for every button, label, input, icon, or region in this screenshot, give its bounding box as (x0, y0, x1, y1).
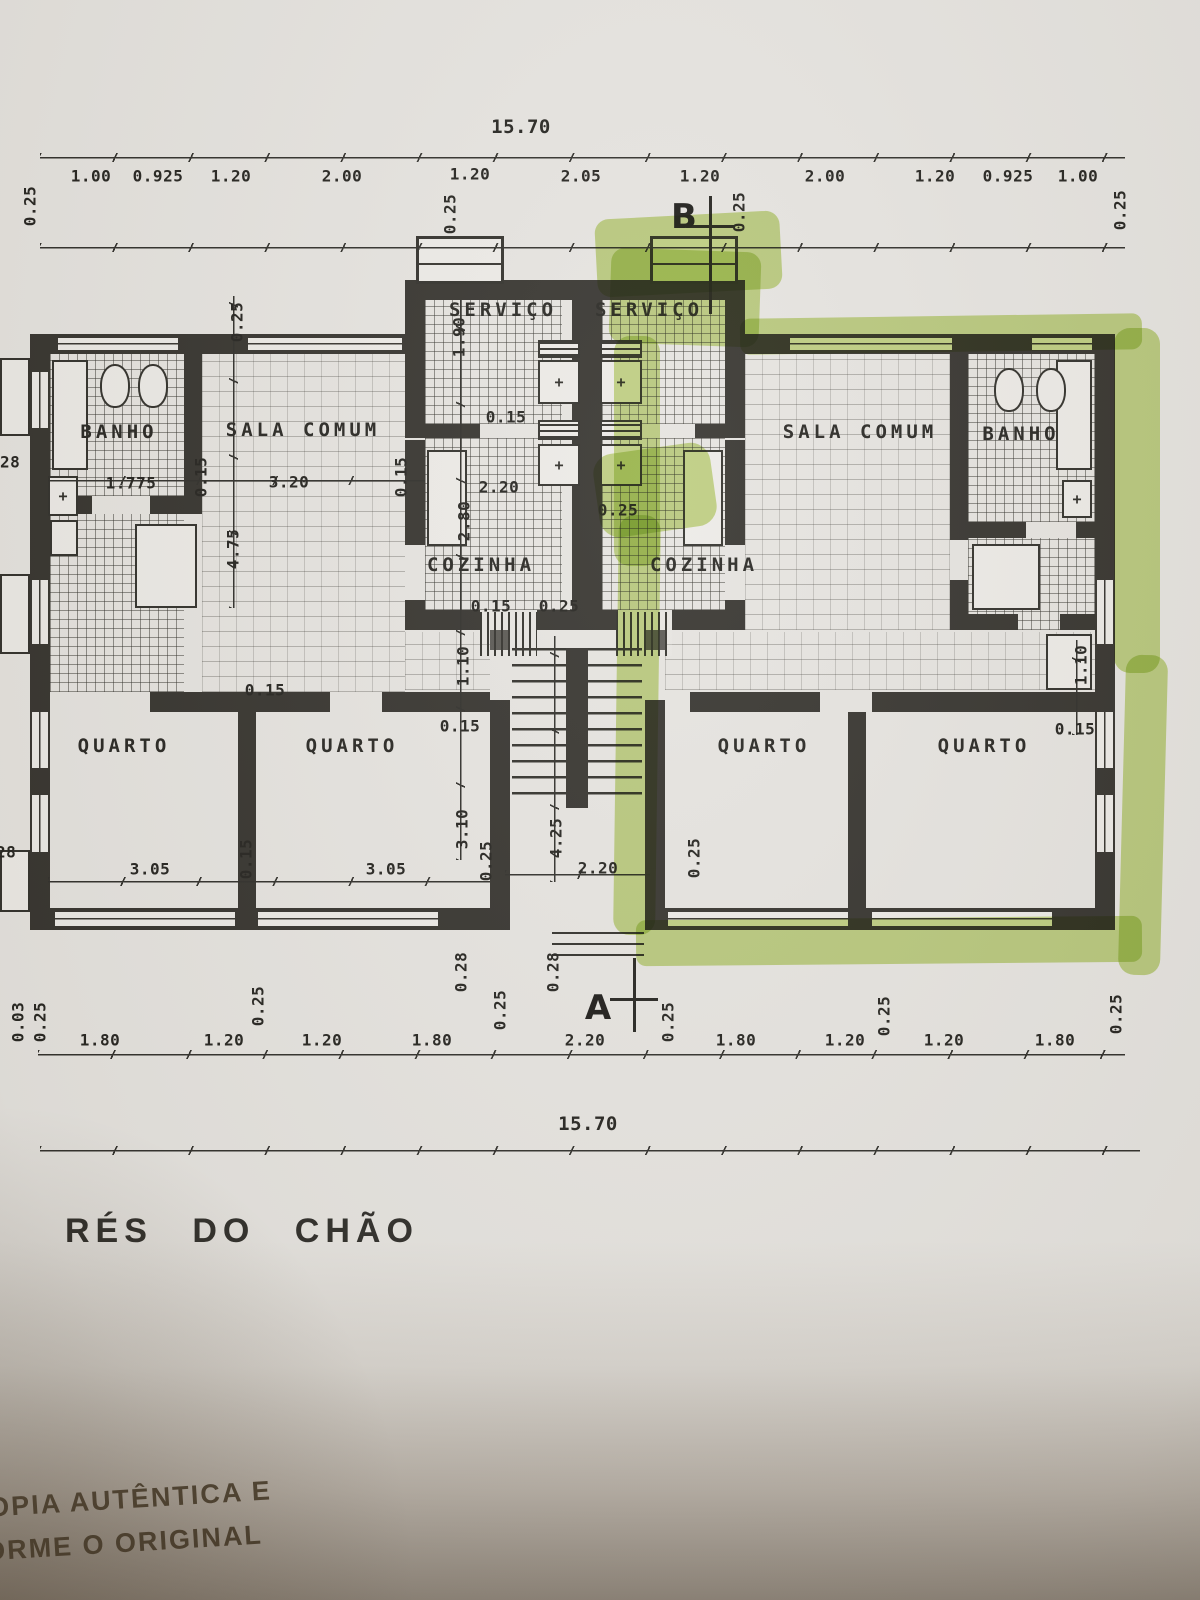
wall (405, 610, 480, 630)
dim-label: 1.80 (1035, 1031, 1076, 1050)
room-label-quarto-1: QUARTO (78, 735, 171, 757)
window (1095, 795, 1115, 852)
dim-label: 0.28 (544, 952, 563, 993)
dim-label: 0.15 (471, 597, 512, 616)
section-line-a-tick (610, 998, 658, 1001)
dim-label: 2.00 (805, 167, 846, 186)
toilet (100, 364, 130, 408)
dim-label: 1.20 (825, 1031, 866, 1050)
dim-label: 0.15 (192, 457, 211, 498)
dim-label: 1.80 (412, 1031, 453, 1050)
dim-label: 3.20 (269, 473, 310, 492)
dim-label: 2.00 (322, 167, 363, 186)
wash-rack (538, 420, 580, 440)
dim-label: 1.10 (1072, 645, 1091, 686)
wall (950, 580, 968, 630)
dim-label-overall: 15.70 (558, 1113, 618, 1135)
closet (135, 524, 197, 608)
room-label-quarto-2: QUARTO (306, 735, 399, 757)
toilet (994, 368, 1024, 412)
closet (972, 544, 1040, 610)
fixture-cross: + (554, 456, 563, 474)
dim-label: 0.28 (0, 453, 20, 472)
cabinet (50, 520, 78, 556)
dim-label: 4.25 (547, 818, 566, 859)
wall (695, 424, 745, 438)
fixture-cross: + (554, 373, 563, 391)
dim-line (40, 1146, 1140, 1155)
dim-label: 2.80 (455, 501, 474, 542)
dim-label: 1.80 (716, 1031, 757, 1050)
dim-label: 0.15 (392, 457, 411, 498)
wall (848, 712, 866, 908)
dim-label: 0.28 (452, 952, 471, 993)
dim-label: 0.15 (440, 717, 481, 736)
bidet (138, 364, 168, 408)
dim-label-overall: 15.70 (491, 116, 551, 138)
wall (872, 692, 1095, 712)
dim-label: 1.20 (924, 1031, 965, 1050)
section-marker-a: A (585, 988, 611, 1028)
dim-label: 4.75 (224, 529, 243, 570)
floor-title: RÉS DO CHÃO (65, 1212, 419, 1251)
wall (968, 614, 1018, 630)
dim-label: 1.20 (680, 167, 721, 186)
dim-label: 1.10 (454, 646, 473, 687)
dim-label: 2.05 (561, 167, 602, 186)
dim-label: 1.00 (71, 167, 112, 186)
window (30, 712, 50, 768)
dim-label: 0.25 (659, 1002, 678, 1043)
dim-label: 0.15 (486, 408, 527, 427)
window (30, 372, 50, 428)
wall (1060, 614, 1095, 630)
dim-label: 0.25 (441, 194, 460, 235)
window (30, 580, 50, 644)
room-label-banho-right: BANHO (982, 423, 1059, 445)
dim-label: 3.05 (130, 860, 171, 879)
highlighter-stroke (613, 515, 661, 936)
wall (1076, 522, 1095, 538)
wall (968, 522, 1026, 538)
wall (672, 610, 745, 630)
wall (405, 280, 425, 425)
balcony-box (0, 358, 30, 436)
dim-label: 1.775 (106, 474, 157, 493)
dim-label: 1.20 (302, 1031, 343, 1050)
dim-label: 3.10 (453, 809, 472, 850)
window (30, 795, 50, 852)
room-label-cozinha-right: COZINHA (650, 554, 758, 576)
room-label-cozinha-left: COZINHA (427, 554, 535, 576)
highlighter-stroke (636, 916, 1142, 966)
dim-label: 2.20 (565, 1031, 606, 1050)
dim-line (456, 300, 465, 860)
bidet (1036, 368, 1066, 412)
dim-label: 0.25 (875, 996, 894, 1037)
balcony-box (0, 574, 30, 654)
highlighter-stroke (740, 313, 1142, 355)
wall (690, 692, 820, 712)
dim-label: 0.25 (31, 1002, 50, 1043)
dim-label: 0.925 (983, 167, 1034, 186)
fixture-cross: + (58, 487, 67, 505)
dim-label: 0.25 (1107, 994, 1126, 1035)
dim-label: 0.25 (1111, 190, 1130, 231)
wall (150, 692, 330, 712)
dim-label: 1.80 (80, 1031, 121, 1050)
fixture-cross: + (1072, 490, 1081, 508)
dim-line (38, 1050, 1125, 1059)
floor-hatch-corridor-left (405, 632, 490, 690)
dim-label: 0.15 (245, 681, 286, 700)
floor-hatch-corridor-right (665, 632, 1095, 690)
window (58, 336, 178, 352)
room-label-quarto-3: QUARTO (718, 735, 811, 757)
window (55, 910, 235, 928)
room-label-sala-left: SALA COMUM (226, 419, 380, 441)
window (1095, 580, 1115, 644)
dim-label: 0.03 (9, 1002, 28, 1043)
dim-line (40, 243, 1125, 252)
dim-label: 0.925 (133, 167, 184, 186)
dim-label: 0.25 (21, 186, 40, 227)
dim-label: 1.20 (450, 165, 491, 184)
room-label-banho-left: BANHO (80, 421, 157, 443)
dim-label: 1.20 (211, 167, 252, 186)
dim-label: 1.00 (1058, 167, 1099, 186)
wall (382, 692, 490, 712)
dim-line (40, 153, 1125, 162)
window (248, 336, 402, 352)
scanned-floor-plan: + + + + + + 0.25 1.00 0.925 1.20 2.00 0.… (0, 0, 1200, 1600)
floor-hatch-sala-right (745, 354, 950, 630)
wash-rack (538, 340, 580, 358)
dim-label: 0.25 (539, 597, 580, 616)
window (1095, 712, 1115, 768)
room-label-sala-right: SALA COMUM (783, 421, 937, 443)
window (258, 910, 438, 928)
dim-label: 2.20 (479, 478, 520, 497)
highlighter-stroke (608, 247, 761, 347)
stamp-text-line1: OPIA AUTÊNTICA E (0, 1475, 273, 1523)
dim-label: 1.90 (450, 317, 469, 358)
dim-line (48, 877, 490, 886)
wall (950, 334, 968, 540)
stair-stringer (566, 648, 588, 808)
entry-steps (552, 932, 644, 962)
wall (725, 440, 745, 545)
dim-label: 0.25 (491, 990, 510, 1031)
dim-label: 0.28 (0, 843, 16, 862)
dim-label: 0.25 (685, 838, 704, 879)
dim-label: 0.15 (237, 839, 256, 880)
room-label-quarto-4: QUARTO (938, 735, 1031, 757)
dim-label: 0.25 (228, 302, 247, 343)
room-label-servico-left: SERVIÇO (449, 299, 557, 321)
highlighter-stroke (1114, 328, 1160, 673)
section-line-a (633, 958, 636, 1032)
dim-label: 0.25 (477, 841, 496, 882)
dim-label: 1.20 (915, 167, 956, 186)
dim-label: 3.05 (366, 860, 407, 879)
bathtub (52, 360, 88, 470)
dim-label: 0.25 (249, 986, 268, 1027)
dim-label: 2.20 (578, 859, 619, 878)
stamp-text-line2: ORME O ORIGINAL (0, 1520, 264, 1568)
dim-label: 0.15 (1055, 720, 1096, 739)
wall (405, 424, 480, 438)
dim-label: 1.20 (204, 1031, 245, 1050)
wall (150, 496, 202, 514)
